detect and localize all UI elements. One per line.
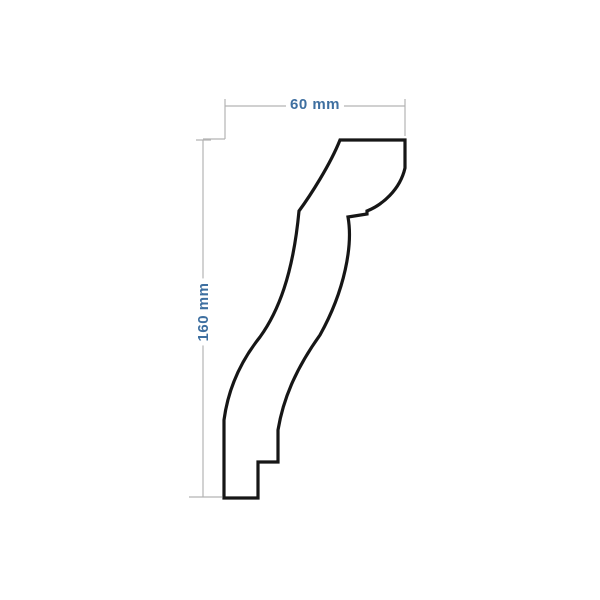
width-dimension-label: 60 mm	[286, 96, 344, 114]
height-dimension-label: 160 mm	[195, 279, 213, 346]
drawing-canvas: 60 mm 160 mm	[0, 0, 600, 600]
technical-drawing	[0, 0, 600, 600]
molding-profile-outline	[224, 140, 405, 498]
